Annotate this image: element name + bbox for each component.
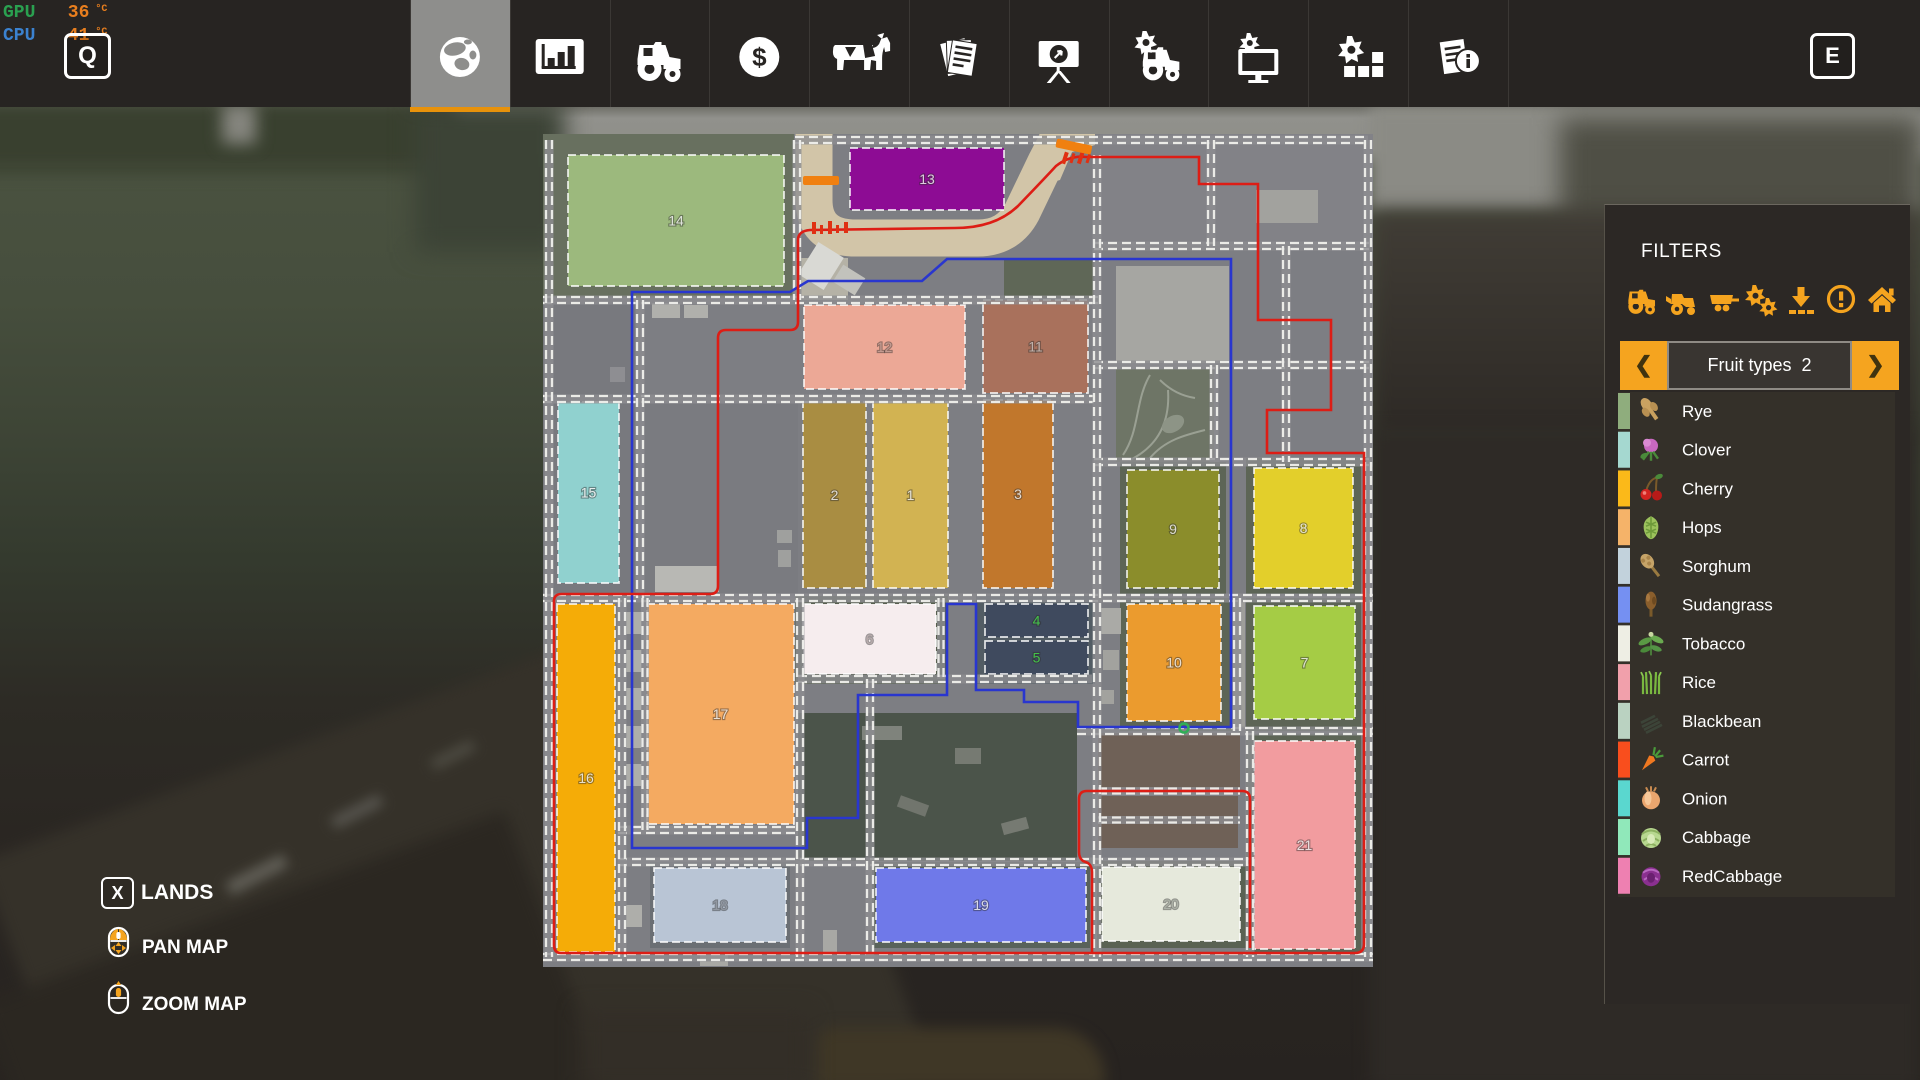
- svg-text:11: 11: [1028, 339, 1043, 355]
- svg-text:Tobacco: Tobacco: [1682, 634, 1745, 653]
- svg-text:17: 17: [713, 706, 729, 722]
- svg-text:8: 8: [1300, 520, 1308, 536]
- svg-text:12: 12: [877, 339, 893, 355]
- svg-text:21: 21: [1297, 837, 1313, 853]
- svg-text:18: 18: [712, 897, 728, 913]
- svg-text:Cabbage: Cabbage: [1682, 828, 1751, 847]
- svg-text:10: 10: [1166, 655, 1182, 671]
- svg-text:20: 20: [1163, 896, 1179, 912]
- svg-text:15: 15: [581, 485, 597, 501]
- svg-text:Blackbean: Blackbean: [1682, 712, 1761, 731]
- svg-text:Carrot: Carrot: [1682, 751, 1730, 770]
- svg-text:6: 6: [866, 631, 874, 647]
- svg-text:1: 1: [907, 487, 915, 503]
- svg-text:$: $: [752, 42, 767, 72]
- svg-text:Hops: Hops: [1682, 518, 1722, 537]
- svg-text:13: 13: [919, 171, 935, 187]
- svg-text:Onion: Onion: [1682, 789, 1727, 808]
- svg-text:9: 9: [1169, 521, 1177, 537]
- svg-text:14: 14: [668, 213, 684, 229]
- svg-text:Cherry: Cherry: [1682, 479, 1734, 498]
- svg-text:Sudangrass: Sudangrass: [1682, 596, 1773, 615]
- svg-text:Rye: Rye: [1682, 402, 1712, 421]
- svg-text:Clover: Clover: [1682, 441, 1731, 460]
- svg-text:Rice: Rice: [1682, 673, 1716, 692]
- svg-text:5: 5: [1033, 650, 1041, 666]
- svg-text:16: 16: [578, 770, 594, 786]
- svg-text:19: 19: [973, 897, 989, 913]
- svg-text:7: 7: [1301, 655, 1309, 671]
- svg-text:2: 2: [831, 487, 839, 503]
- svg-text:Sorghum: Sorghum: [1682, 557, 1751, 576]
- svg-text:4: 4: [1033, 613, 1041, 629]
- svg-text:3: 3: [1014, 486, 1022, 502]
- svg-text:RedCabbage: RedCabbage: [1682, 867, 1782, 886]
